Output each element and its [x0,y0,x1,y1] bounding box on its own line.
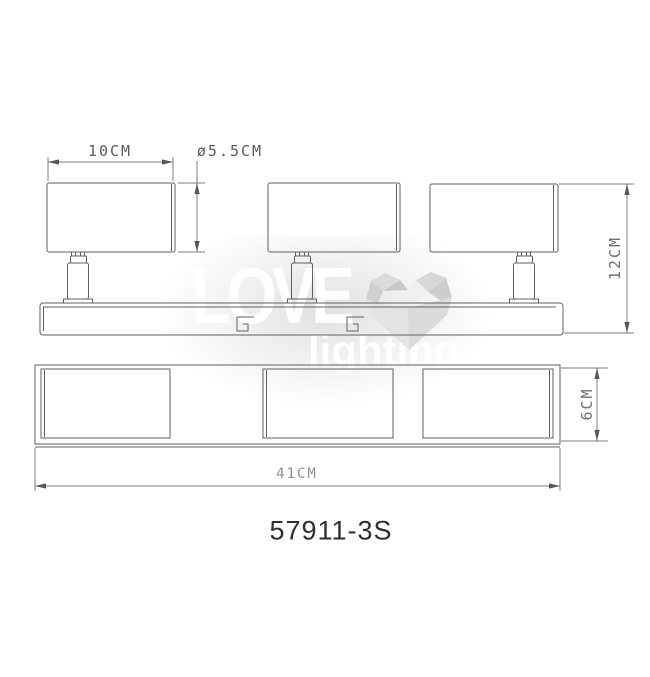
dim-head-width [48,157,173,181]
dim-label-overall-height: 12CM [606,236,624,280]
dimension-lines [35,157,634,491]
technical-drawing-page: LOVE lighting [0,0,650,677]
stem-left [64,252,93,303]
bottom-view [35,365,560,447]
dim-head-diameter [178,161,205,252]
dim-label-overall-length: 41CM [276,466,318,482]
dim-label-head-width: 10CM [88,142,132,160]
dim-label-base-depth: 6CM [578,387,596,420]
mounting-clip-left [237,317,254,331]
head-footprint-center [263,369,393,438]
side-view [40,183,563,335]
base-outline [35,365,560,444]
fixture-line-drawing [0,0,650,677]
head-footprint-left [41,369,170,438]
spot-head-center [268,183,400,252]
model-number: 57911-3S [269,516,392,547]
heart-icon [366,272,452,350]
stem-center [288,252,317,303]
spot-head-right [430,184,558,252]
mounting-clip-right [347,317,364,331]
spot-head-left [47,183,175,252]
head-footprint-right [423,369,553,438]
mounting-bar [40,303,563,335]
dim-label-head-diameter: ø5.5CM [197,142,263,160]
stem-right [510,252,539,303]
